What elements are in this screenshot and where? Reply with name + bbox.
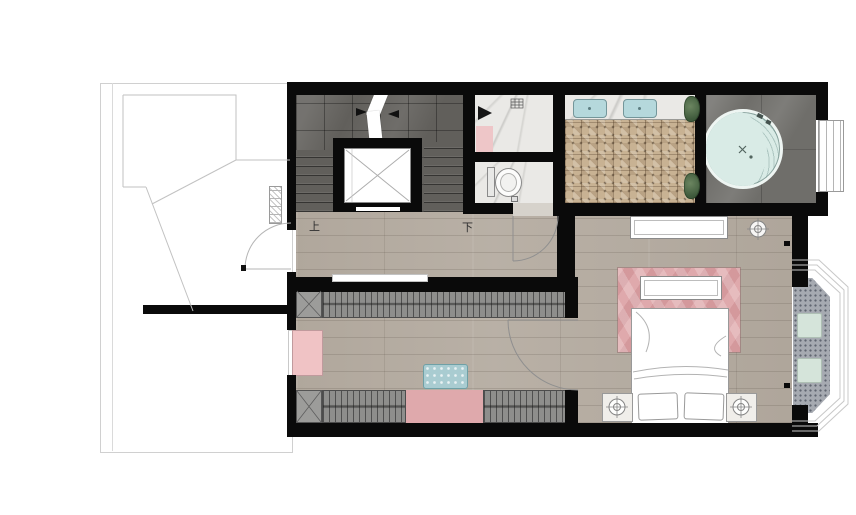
closet-ottoman	[423, 364, 468, 389]
hvac-unit	[269, 186, 282, 224]
tv-dresser	[630, 216, 728, 239]
pillow-left	[638, 392, 679, 420]
wall-hall-bedroom-column	[557, 214, 575, 281]
floor-drain	[511, 196, 518, 202]
wardrobe-south-west	[322, 390, 406, 423]
cabinet-south-west	[296, 390, 322, 423]
wardrobe-north	[322, 290, 569, 318]
wall-west-upper	[287, 95, 296, 230]
wall-closet-bedroom-b	[565, 390, 578, 423]
stairs-down-label: 下	[462, 222, 473, 233]
nightstand-left	[602, 393, 633, 422]
closet-sliding-door	[332, 274, 428, 282]
shower-mat	[476, 126, 493, 152]
sink-right	[623, 99, 657, 118]
wall-shower-toilet	[475, 152, 553, 162]
wall-stair-bath	[463, 95, 475, 214]
wall-northeast-b	[816, 192, 828, 216]
floor-plan-canvas: 上 下	[0, 0, 856, 515]
wall-east-lower	[792, 405, 808, 423]
toilet-bowl-inner	[500, 173, 517, 192]
terrace-inner-line	[112, 83, 113, 451]
terrace-outline	[100, 83, 293, 453]
wall-bath-vanity	[553, 95, 565, 216]
elevator-door-gap	[356, 207, 400, 211]
jacuzzi-tub	[703, 109, 783, 189]
bed-bench-cushion	[644, 280, 718, 296]
sink-left	[573, 99, 607, 118]
wall-north	[287, 82, 828, 95]
terrace-wall	[143, 305, 289, 314]
east-bay-window	[818, 120, 844, 192]
cabinet-north-west	[296, 290, 322, 318]
closet-rug	[406, 390, 483, 423]
balcony-cushion-top	[797, 313, 822, 338]
stair-treads-up	[296, 150, 338, 212]
tv-dresser-top	[634, 220, 724, 235]
balcony-floor	[793, 278, 830, 413]
wall-hall-closet	[287, 277, 578, 292]
bed-bench	[640, 276, 722, 300]
stair-treads-down	[424, 142, 463, 212]
balcony-door-stop-top	[784, 241, 790, 246]
toilet-tank	[487, 167, 495, 197]
closet-dresser	[292, 330, 323, 376]
wardrobe-south-east	[483, 390, 569, 423]
wall-bedroom-north	[560, 203, 816, 216]
wall-northeast-a	[816, 82, 828, 120]
elevator-car	[344, 148, 411, 203]
stairs-up-label: 上	[309, 221, 320, 232]
pillow-right	[684, 392, 725, 420]
wall-bath-hall	[463, 203, 513, 214]
wall-south	[287, 423, 818, 437]
wall-closet-west-b	[287, 375, 296, 423]
balcony-cushion-bottom	[797, 358, 822, 383]
balcony-door-stop-bottom	[784, 383, 790, 388]
nightstand-right	[726, 393, 757, 422]
wall-closet-bedroom-a	[565, 281, 578, 318]
